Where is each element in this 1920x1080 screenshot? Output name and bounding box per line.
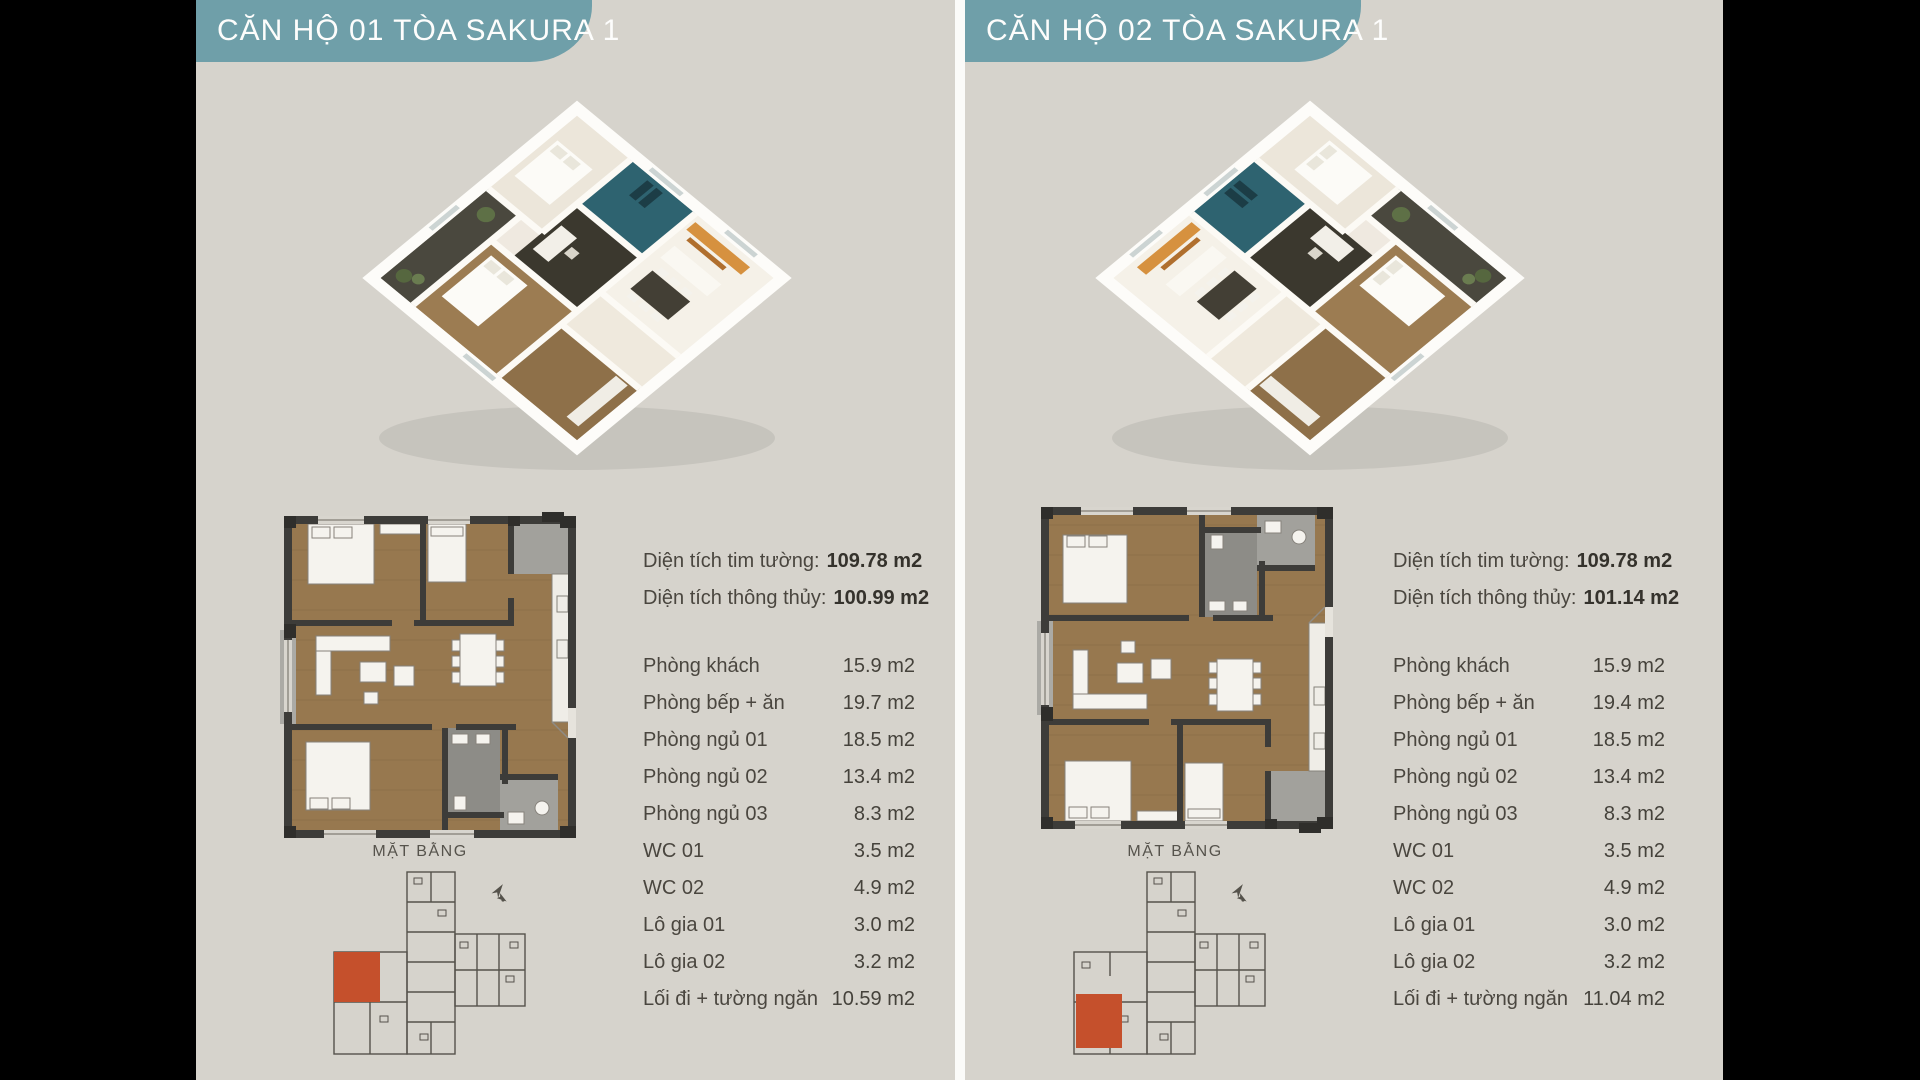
room-label: Phòng ngủ 01 (643, 722, 768, 759)
room-value: 8.3 m2 (1604, 796, 1665, 833)
room-label: WC 01 (643, 833, 704, 870)
room-row: Phòng bếp + ăn19.4 m2 (1393, 685, 1665, 722)
highlighted-unit (334, 952, 380, 1002)
page-canvas: CĂN HỘ 01 TÒA SAKURA 1 MẶT BẰNG Diện tíc… (0, 0, 1920, 1080)
unit-01-title: CĂN HỘ 01 TÒA SAKURA 1 (217, 14, 620, 47)
room-label: Phòng ngủ 02 (643, 759, 768, 796)
area-line: Diện tích thông thủy:100.99 m2 (643, 580, 915, 617)
room-list: Phòng khách15.9 m2 Phòng bếp + ăn19.4 m2… (1393, 648, 1665, 1018)
room-value: 3.2 m2 (1604, 944, 1665, 981)
room-value: 18.5 m2 (843, 722, 915, 759)
area-label: Diện tích tim tường: (1393, 550, 1570, 572)
room-row: Phòng ngủ 0213.4 m2 (643, 759, 915, 796)
room-row: Lô gia 023.2 m2 (1393, 944, 1665, 981)
unit-02-floor-plan-2d (1037, 503, 1337, 833)
room-value: 15.9 m2 (843, 648, 915, 685)
room-label: Phòng ngủ 01 (1393, 722, 1518, 759)
unit-02-header: CĂN HỘ 02 TÒA SAKURA 1 (965, 0, 1361, 62)
room-label: Lối đi + tường ngăn (643, 981, 818, 1018)
room-value: 3.0 m2 (1604, 907, 1665, 944)
room-row: Phòng ngủ 038.3 m2 (1393, 796, 1665, 833)
unit-02-title: CĂN HỘ 02 TÒA SAKURA 1 (986, 14, 1389, 47)
unit-02-site-keyplan (1050, 866, 1270, 1066)
panel-divider (955, 0, 965, 1080)
area-label: Diện tích tim tường: (643, 550, 820, 572)
area-line: Diện tích thông thủy:101.14 m2 (1393, 580, 1665, 617)
room-row: Lô gia 013.0 m2 (1393, 907, 1665, 944)
room-row: WC 024.9 m2 (1393, 870, 1665, 907)
room-value: 4.9 m2 (854, 870, 915, 907)
room-value: 3.2 m2 (854, 944, 915, 981)
room-value: 10.59 m2 (832, 981, 915, 1018)
room-value: 19.7 m2 (843, 685, 915, 722)
room-label: Lô gia 01 (1393, 907, 1475, 944)
room-value: 15.9 m2 (1593, 648, 1665, 685)
unit-01-3d-render (362, 82, 792, 490)
unit-02-panel: CĂN HỘ 02 TÒA SAKURA 1 MẶT BẰNG Diện tíc… (965, 0, 1723, 1080)
room-row: Lô gia 013.0 m2 (643, 907, 915, 944)
room-row: WC 013.5 m2 (643, 833, 915, 870)
room-label: Lô gia 02 (1393, 944, 1475, 981)
room-value: 18.5 m2 (1593, 722, 1665, 759)
room-value: 4.9 m2 (1604, 870, 1665, 907)
room-value: 3.0 m2 (854, 907, 915, 944)
room-row: Phòng bếp + ăn19.7 m2 (643, 685, 915, 722)
area-value: 100.99 m2 (833, 587, 929, 609)
room-label: Lô gia 02 (643, 944, 725, 981)
room-row: Phòng ngủ 0118.5 m2 (643, 722, 915, 759)
unit-01-floor-plan-2d (280, 512, 580, 842)
brochure-page: CĂN HỘ 01 TÒA SAKURA 1 MẶT BẰNG Diện tíc… (196, 0, 1723, 1080)
area-label: Diện tích thông thủy: (1393, 587, 1576, 609)
room-row: Phòng ngủ 0213.4 m2 (1393, 759, 1665, 796)
room-value: 19.4 m2 (1593, 685, 1665, 722)
room-label: Lối đi + tường ngăn (1393, 981, 1568, 1018)
room-row: Phòng ngủ 038.3 m2 (643, 796, 915, 833)
unit-02-plan-caption: MẶT BẰNG (1075, 843, 1275, 861)
area-label: Diện tích thông thủy: (643, 587, 826, 609)
unit-01-site-keyplan (310, 866, 530, 1066)
room-list: Phòng khách15.9 m2 Phòng bếp + ăn19.7 m2… (643, 648, 915, 1018)
unit-02-stats: Diện tích tim tường:109.78 m2 Diện tích … (1393, 543, 1665, 1018)
unit-02-3d-render (1095, 82, 1525, 490)
area-value: 109.78 m2 (1577, 550, 1673, 572)
room-row: Lô gia 023.2 m2 (643, 944, 915, 981)
room-label: WC 02 (643, 870, 704, 907)
unit-01-plan-caption: MẶT BẰNG (320, 843, 520, 861)
room-value: 3.5 m2 (854, 833, 915, 870)
area-line: Diện tích tim tường:109.78 m2 (1393, 543, 1665, 580)
room-row: Lối đi + tường ngăn10.59 m2 (643, 981, 915, 1018)
unit-01-panel: CĂN HỘ 01 TÒA SAKURA 1 MẶT BẰNG Diện tíc… (196, 0, 955, 1080)
room-label: Phòng ngủ 02 (1393, 759, 1518, 796)
room-value: 13.4 m2 (1593, 759, 1665, 796)
room-label: Phòng ngủ 03 (643, 796, 768, 833)
room-label: WC 02 (1393, 870, 1454, 907)
area-line: Diện tích tim tường:109.78 m2 (643, 543, 915, 580)
room-value: 3.5 m2 (1604, 833, 1665, 870)
unit-01-stats: Diện tích tim tường:109.78 m2 Diện tích … (643, 543, 915, 1018)
room-label: Phòng bếp + ăn (643, 685, 785, 722)
highlighted-unit (1076, 994, 1122, 1048)
room-label: Phòng khách (1393, 648, 1510, 685)
room-row: WC 024.9 m2 (643, 870, 915, 907)
room-row: WC 013.5 m2 (1393, 833, 1665, 870)
area-value: 101.14 m2 (1583, 587, 1679, 609)
room-row: Phòng khách15.9 m2 (1393, 648, 1665, 685)
room-row: Phòng ngủ 0118.5 m2 (1393, 722, 1665, 759)
room-row: Phòng khách15.9 m2 (643, 648, 915, 685)
room-value: 11.04 m2 (1583, 981, 1665, 1018)
room-row: Lối đi + tường ngăn11.04 m2 (1393, 981, 1665, 1018)
room-label: Phòng khách (643, 648, 760, 685)
area-value: 109.78 m2 (827, 550, 923, 572)
room-label: Phòng bếp + ăn (1393, 685, 1535, 722)
unit-01-header: CĂN HỘ 01 TÒA SAKURA 1 (196, 0, 592, 62)
room-value: 13.4 m2 (843, 759, 915, 796)
room-label: Lô gia 01 (643, 907, 725, 944)
room-label: Phòng ngủ 03 (1393, 796, 1518, 833)
room-label: WC 01 (1393, 833, 1454, 870)
room-value: 8.3 m2 (854, 796, 915, 833)
